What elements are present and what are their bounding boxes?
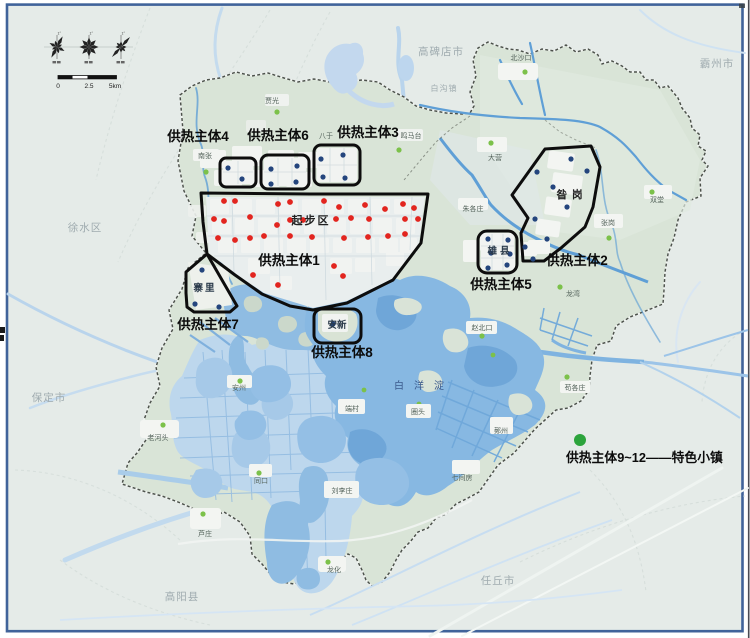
svg-text:供热主体7: 供热主体7 (176, 316, 239, 332)
svg-text:供热主体8: 供热主体8 (310, 344, 373, 360)
svg-text:圈头: 圈头 (411, 407, 425, 416)
svg-text:老河头: 老河头 (148, 433, 169, 442)
svg-text:南张: 南张 (198, 151, 212, 160)
svg-text:白沟镇: 白沟镇 (431, 83, 458, 93)
svg-text:供热主体3: 供热主体3 (336, 124, 399, 140)
svg-text:1°: 1° (90, 32, 94, 36)
svg-text:朱各庄: 朱各庄 (463, 204, 484, 213)
svg-text:供热主体2: 供热主体2 (545, 252, 608, 268)
svg-text:芦庄: 芦庄 (198, 529, 212, 538)
svg-text:寨里: 寨里 (192, 282, 216, 294)
svg-text:鄚州: 鄚州 (494, 426, 508, 435)
svg-text:1°: 1° (122, 32, 126, 36)
svg-text:雄县: 雄县 (486, 245, 512, 257)
svg-text:2.5: 2.5 (84, 83, 93, 90)
svg-text:供热主体6: 供热主体6 (246, 127, 309, 143)
svg-text:白洋淀: 白洋淀 (394, 379, 454, 392)
svg-text:安新: 安新 (327, 319, 347, 331)
svg-text:供热主体4: 供热主体4 (166, 128, 229, 144)
svg-text:5km: 5km (109, 83, 121, 90)
svg-text:贾光: 贾光 (265, 96, 279, 105)
svg-text:刘李庄: 刘李庄 (332, 486, 353, 495)
svg-text:张岗: 张岗 (601, 218, 615, 227)
svg-text:供热主体1: 供热主体1 (257, 252, 320, 268)
svg-text:双堂: 双堂 (650, 195, 664, 204)
svg-text:龙化: 龙化 (327, 565, 341, 574)
svg-text:大营: 大营 (488, 153, 502, 162)
svg-text:1°: 1° (58, 32, 62, 36)
svg-text:八于: 八于 (319, 132, 333, 140)
svg-text:同口: 同口 (254, 477, 268, 485)
svg-text:任丘市: 任丘市 (481, 574, 516, 587)
svg-text:起步区: 起步区 (291, 213, 331, 227)
svg-text:七间房: 七间房 (452, 473, 473, 482)
svg-text:昝岗: 昝岗 (557, 188, 588, 201)
svg-text:0: 0 (56, 83, 60, 90)
svg-text:高阳县: 高阳县 (165, 590, 200, 603)
svg-text:赵北口: 赵北口 (472, 323, 493, 332)
svg-text:苟各庄: 苟各庄 (565, 383, 586, 392)
svg-text:高碑店市: 高碑店市 (418, 45, 464, 58)
svg-text:保定市: 保定市 (32, 391, 67, 404)
svg-text:北沙口: 北沙口 (511, 54, 532, 62)
svg-text:龙湾: 龙湾 (566, 289, 580, 298)
svg-text:供热主体5: 供热主体5 (469, 276, 532, 292)
svg-text:霸州市: 霸州市 (700, 57, 735, 70)
svg-text:供热主体9~12——特色小镇: 供热主体9~12——特色小镇 (565, 450, 723, 465)
svg-text:徐水区: 徐水区 (68, 221, 103, 234)
svg-text:安州: 安州 (232, 383, 246, 392)
svg-text:端村: 端村 (345, 404, 359, 413)
svg-text:鸣马台: 鸣马台 (401, 131, 422, 140)
